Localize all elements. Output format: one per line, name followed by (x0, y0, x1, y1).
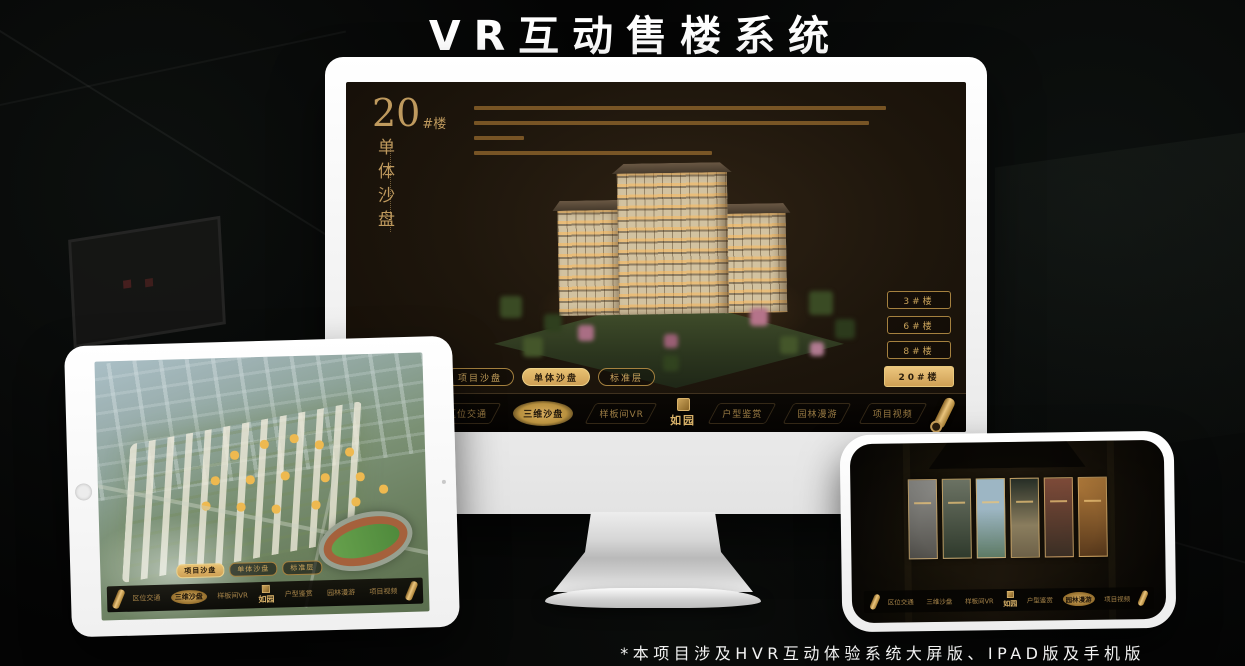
scroll-menu-icon[interactable] (1137, 590, 1149, 607)
nav-item-unit-plans[interactable]: 户型鉴赏 (281, 587, 317, 602)
tablet-home-button[interactable] (75, 483, 92, 500)
tab-single-sandtable[interactable]: 单体沙盘 (229, 562, 277, 577)
seal-icon (262, 585, 270, 593)
building-number-suffix: #楼 (422, 113, 446, 132)
nav-item-project-video[interactable]: 项目视频 (365, 584, 401, 599)
headline-vertical-subtitle: 单体沙盘 (372, 138, 397, 246)
scroll-menu-icon[interactable] (932, 396, 956, 430)
floor-button-6[interactable]: 6#楼 (887, 316, 951, 334)
building-wing-left (557, 209, 623, 316)
building-wing-right (724, 212, 788, 313)
seal-icon (677, 398, 690, 411)
nav-item-project-video[interactable]: 项目视频 (864, 403, 922, 424)
floor-button-8[interactable]: 8#楼 (887, 341, 951, 359)
building-tower-center (617, 171, 729, 315)
tablet-screen: 项目沙盘 单体沙盘 标准层 区位交通 三维沙盘 样板间VR 如园 户型鉴赏 园林… (94, 352, 429, 620)
nav-item-showroom-vr[interactable]: 样板间VR (590, 403, 652, 424)
nav-item-unit-plans[interactable]: 户型鉴赏 (713, 403, 771, 424)
tab-project-sandtable[interactable]: 项目沙盘 (446, 368, 514, 386)
monitor-stand-base (545, 588, 761, 608)
building-headline: 20 #楼 单体沙盘 (372, 94, 446, 246)
tablet-sandtable-subtabs: 项目沙盘 单体沙盘 标准层 (176, 560, 322, 578)
nav-item-location[interactable]: 区位交通 (885, 594, 917, 608)
nav-item-location[interactable]: 区位交通 (128, 591, 164, 606)
floor-button-3[interactable]: 3#楼 (887, 291, 951, 309)
phone-navbar: 区位交通 三维沙盘 样板间VR 如园 户型鉴赏 园林漫游 项目视频 (864, 587, 1154, 613)
footnote-caption: *本项目涉及HVR互动体验系统大屏版、IPAD版及手机版 (620, 640, 1145, 664)
scroll-menu-icon[interactable] (869, 593, 881, 610)
page-title: VR互动售楼系统 (0, 2, 1245, 62)
brand-logo: 如园 (670, 398, 696, 428)
brand-logo-text: 如园 (258, 594, 274, 605)
residential-building (557, 162, 788, 322)
floor-button-20[interactable]: 20#楼 (884, 366, 954, 387)
brand-logo: 如园 (258, 585, 275, 605)
building-number-badges (111, 387, 114, 390)
description-text-line (474, 106, 886, 110)
sandtable-subtabs: 项目沙盘 单体沙盘 标准层 (446, 368, 655, 386)
scroll-menu-icon[interactable] (112, 588, 126, 609)
nav-item-garden-roam[interactable]: 园林漫游 (323, 585, 359, 600)
phone-screen: 区位交通 三维沙盘 样板间VR 如园 户型鉴赏 园林漫游 项目视频 (850, 440, 1166, 623)
nav-item-project-video[interactable]: 项目视频 (1101, 591, 1133, 605)
nav-item-3d-sandtable[interactable]: 三维沙盘 (171, 590, 207, 605)
nav-item-showroom-vr[interactable]: 样板间VR (962, 593, 997, 607)
scroll-menu-icon[interactable] (404, 580, 418, 601)
background-plaque (68, 216, 226, 349)
seal-icon (1007, 591, 1014, 598)
tab-standard-floor[interactable]: 标准层 (282, 560, 322, 575)
building-3d-render[interactable] (464, 138, 888, 400)
background-aerial-photo (995, 132, 1245, 467)
tab-single-sandtable[interactable]: 单体沙盘 (522, 368, 590, 386)
vr-sales-system-poster: VR互动售楼系统 20 #楼 单体沙盘 (0, 0, 1245, 666)
nav-item-garden-roam[interactable]: 园林漫游 (1062, 592, 1094, 606)
nav-item-3d-sandtable[interactable]: 三维沙盘 (513, 401, 573, 426)
nav-item-garden-roam[interactable]: 园林漫游 (788, 403, 846, 424)
building-number: 20 (372, 94, 420, 132)
phone-device: 区位交通 三维沙盘 样板间VR 如园 户型鉴赏 园林漫游 项目视频 (840, 431, 1177, 633)
description-text-line (474, 121, 869, 125)
tab-standard-floor[interactable]: 标准层 (598, 368, 655, 386)
tab-project-sandtable[interactable]: 项目沙盘 (176, 563, 224, 578)
brand-logo-text: 如园 (1003, 599, 1017, 609)
floor-button-group: 3#楼 6#楼 8#楼 20#楼 (884, 291, 954, 387)
nav-item-3d-sandtable[interactable]: 三维沙盘 (923, 594, 955, 608)
nav-item-showroom-vr[interactable]: 样板间VR (213, 588, 252, 603)
pink-trees (490, 288, 492, 290)
headline-english-caption (390, 144, 392, 232)
tablet-device: 项目沙盘 单体沙盘 标准层 区位交通 三维沙盘 样板间VR 如园 户型鉴赏 园林… (64, 336, 460, 638)
brand-logo: 如园 (1003, 591, 1017, 609)
tablet-camera-dot (442, 479, 446, 483)
monitor-stand-neck (553, 512, 753, 592)
brand-logo-text: 如园 (670, 412, 696, 428)
nav-item-unit-plans[interactable]: 户型鉴赏 (1024, 592, 1056, 606)
